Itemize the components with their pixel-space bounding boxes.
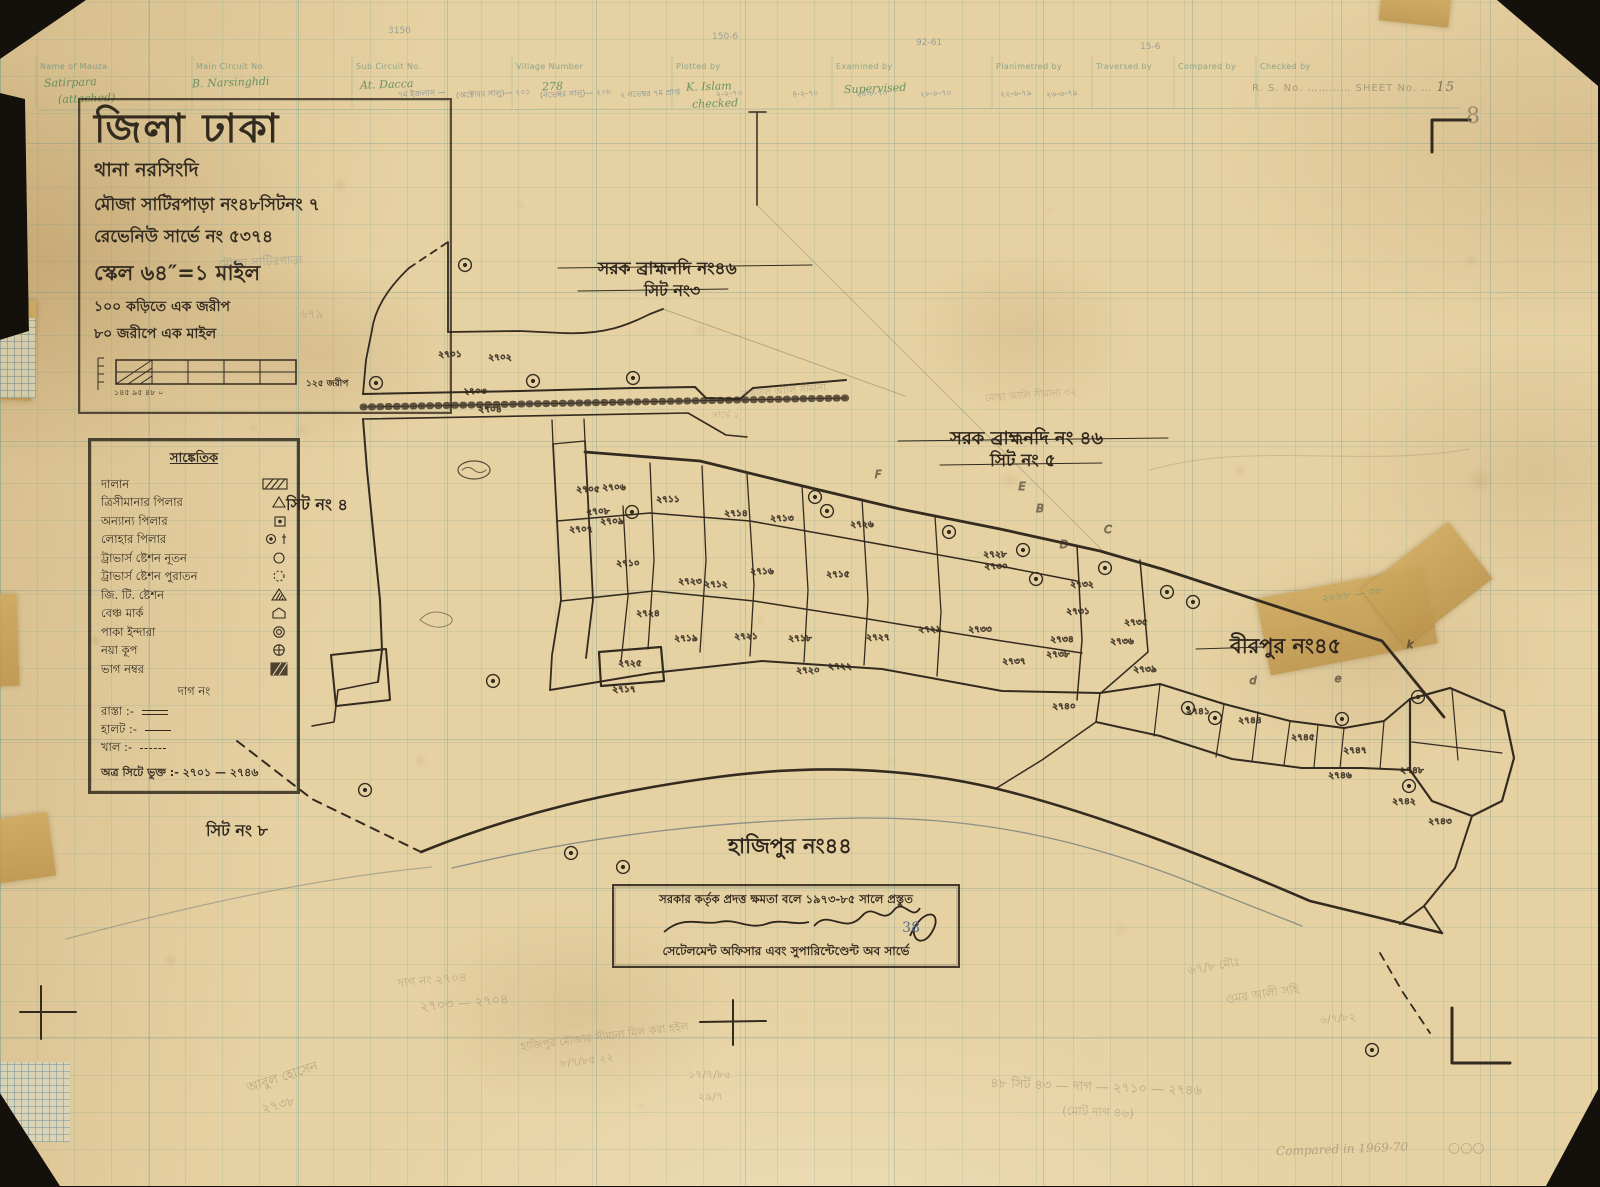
legend-item-label: ট্রাভার্স ষ্টেশন পুরাতন	[101, 568, 198, 587]
legend-item: ট্রাভার্স ষ্টেশন নূতন	[101, 550, 287, 569]
handwritten-note: দাগ নং ২৭০৪	[397, 969, 467, 995]
header-entry: Satirpara	[44, 75, 97, 90]
survey-station-dot	[1213, 716, 1216, 719]
circle-icon	[253, 550, 287, 569]
plot-line	[995, 722, 1096, 789]
survey-station-dot	[1103, 566, 1106, 569]
section-letter: D	[1060, 538, 1068, 551]
sheet-no-value: 15	[1436, 80, 1455, 95]
survey-station-dot	[531, 379, 534, 382]
plot-number: ২৭৩৯	[1133, 665, 1157, 675]
mouza-line: মৌজা সাটিরপাড়া নং৪৮সিটনং ৭	[94, 192, 438, 220]
plot-number: ২৭০৬	[602, 483, 626, 493]
scanned-map-sheet: ২৭০১২৭০২২৭০৩২৭০৪২৭০৫২৭০৬২৭০৭২৭০৮২৭০৯২৭১০…	[0, 0, 1600, 1187]
plot-line	[621, 506, 628, 662]
plot-number: ২৭৩১	[1066, 607, 1089, 617]
survey-station-icon	[1209, 712, 1222, 725]
date-stamp: ২ নভেম্বর ৭ম প্রাপ্ত	[620, 86, 681, 102]
circle-dashed-icon	[253, 568, 287, 587]
plot-number: ২৭১২	[704, 580, 728, 590]
survey-station-dot	[1370, 1048, 1373, 1051]
plot-line	[561, 591, 1082, 653]
survey-station-dot	[1191, 600, 1194, 603]
blue-graph-scrap	[0, 318, 36, 398]
sheet-no-label: SHEET No.	[1356, 83, 1417, 94]
plot-number: ২৭২৯	[918, 625, 942, 635]
survey-station-dot	[463, 263, 466, 266]
place-label: সিট নং ৫	[990, 448, 1056, 476]
handwritten-note: ৬/৭/৮২	[1319, 1008, 1357, 1030]
plot-number: ২৭৪৮	[1400, 766, 1424, 776]
plot-number: ২৭২২	[828, 662, 852, 672]
road-line	[585, 441, 593, 658]
legend-dag-no: দাগ নং	[101, 683, 287, 702]
construction-line	[757, 205, 1105, 553]
legend-item: জি. টি. ষ্টেশন	[101, 587, 287, 606]
plot-number: ২৭৪০	[1052, 702, 1075, 712]
stamp-line-3: সেটেলমেন্ট অফিসার এবং সুপারিন্টেণ্ডেন্ট …	[614, 943, 958, 963]
plot-line	[1154, 684, 1384, 769]
plot-number: ২৭২১	[734, 632, 757, 642]
place-label: সিট নং৩	[644, 278, 700, 305]
legend-items: দালানত্রিসীমানার পিলারঅন্যান্য পিলারলোহা…	[101, 476, 287, 680]
main-road	[585, 452, 1444, 717]
survey-station-dot	[1021, 548, 1024, 551]
date-stamp: ২২-৬-৭৯	[1000, 87, 1032, 102]
header-column-label: Name of Mauza	[40, 62, 108, 71]
scalebar-tick-labels: ১৪৫ ৯৫ ৪৮ ০	[114, 388, 163, 397]
road-line	[363, 413, 747, 437]
survey-station-icon	[487, 675, 500, 688]
survey-station-dot	[813, 495, 816, 498]
legend-extra-label: রাস্তা :-	[101, 703, 134, 722]
plot-number: ২৭০৯	[600, 517, 624, 527]
survey-station-dot	[631, 376, 634, 379]
plot-number: ২৭০৫	[576, 485, 599, 495]
scale-note-1: ১০০ কড়িতে এক জরীপ	[94, 295, 438, 319]
legend-item: ত্রিসীমানার পিলার	[101, 495, 287, 514]
rs-no-dots: …………	[1307, 83, 1355, 94]
survey-station-dot	[1186, 706, 1189, 709]
legend-item-label: নয়া কূপ	[101, 642, 137, 661]
section-letter: B	[1036, 502, 1044, 515]
survey-station-dot	[363, 788, 366, 791]
road-line	[550, 444, 561, 690]
corner-mark	[1432, 120, 1470, 152]
legend-extra-row: হালট :-	[101, 722, 287, 740]
hatch-block-icon	[253, 661, 287, 680]
survey-station-icon	[809, 491, 822, 504]
handwritten-note: Compared in 1969-70	[1276, 1140, 1409, 1159]
sheet-no-dots: …	[1421, 83, 1436, 94]
survey-station-icon	[1099, 562, 1112, 575]
blue-graph-scrap	[0, 1062, 70, 1142]
survey-station-icon	[1161, 586, 1174, 599]
survey-station-icon	[627, 372, 640, 385]
handwritten-note: হাজিপুর মৌজার সীমানা মিল করা হইল	[519, 1018, 689, 1057]
legend-extra-rows: রাস্তা :-হালট :-খাল :-	[101, 704, 287, 758]
road-sample	[142, 710, 168, 715]
legend-item-label: পাকা ইন্দারা	[101, 624, 155, 643]
plot-number: ২৭০৪	[478, 405, 501, 415]
header-column-label: Sub Circuit No.	[356, 62, 421, 71]
handwritten-note: (মোট দাগ ৪৬)	[1062, 1103, 1134, 1125]
plot-polygon	[599, 647, 664, 686]
registration-mark	[700, 1000, 766, 1045]
faint-number: 150-6	[712, 32, 738, 42]
legend-item: নয়া কূপ	[101, 643, 287, 662]
header-column-label: Traversed by	[1096, 62, 1152, 71]
plot-number: ২৭৩৩	[968, 625, 992, 635]
survey-station-dot	[621, 865, 624, 868]
benchmark-icon	[253, 605, 287, 624]
plot-number: ২৭২৫	[618, 659, 641, 669]
tape-patch	[0, 812, 56, 884]
survey-station-dot	[491, 679, 494, 682]
plot-number: ২৭৪২	[1392, 797, 1416, 807]
stamp-blue-number: 38	[902, 920, 920, 936]
survey-station-dot	[1407, 784, 1410, 787]
survey-station-dot	[1340, 717, 1343, 720]
legend-item: অন্যান্য পিলার	[101, 513, 287, 532]
legend-item-label: ট্রাভার্স ষ্টেশন নূতন	[101, 550, 187, 569]
survey-station-icon	[1403, 780, 1416, 793]
plot-number: ২৭৩২	[1070, 580, 1094, 590]
survey-station-icon	[1366, 1044, 1379, 1057]
plot-number: ২৭১৯	[674, 634, 698, 644]
boundary-dashed	[1380, 953, 1430, 1033]
plot-polygon	[331, 649, 390, 706]
handwritten-note: মোহা আলি সীমানা ৩২	[985, 385, 1078, 408]
handwritten-note: ২৭০৩ — ২৭০৪	[419, 990, 509, 1019]
registration-mark	[20, 986, 76, 1039]
place-label: সরক ব্রাহ্মনদি নং ৪৬	[950, 424, 1103, 455]
survey-station-icon	[1412, 691, 1425, 704]
plot-line	[1096, 693, 1100, 722]
plot-number: ২৭২৭	[866, 633, 889, 643]
legend-extra-label: হালট :-	[101, 721, 137, 740]
plot-number: ২৭২৪	[636, 609, 659, 619]
plot-number: ২৭০৩	[463, 387, 487, 397]
hatch-rect-icon	[253, 476, 287, 495]
plot-number: ২৭১৩	[770, 514, 794, 524]
scalebar-unit-label: ১২৫ জরীপ	[306, 376, 349, 389]
plot-number: ২৭১৬	[750, 567, 774, 577]
handwritten-note: সার্ভে ২	[712, 408, 740, 423]
legend-item: বেঞ্চ মার্ক	[101, 606, 287, 625]
plot-polygon	[1410, 688, 1514, 816]
survey-station-dot	[947, 530, 950, 533]
header-column-label: Main Circuit No.	[196, 62, 266, 71]
plot-line	[648, 463, 654, 649]
survey-station-icon	[626, 506, 639, 519]
circle-cross-icon	[253, 642, 287, 661]
survey-station-dot	[1034, 577, 1037, 580]
legend-item: পাকা ইন্দারা	[101, 624, 287, 643]
section-letter: F	[875, 468, 882, 481]
date-stamp: ২৪-৮-৭০	[856, 87, 888, 102]
survey-station-icon	[943, 526, 956, 539]
faint-number: 3150	[388, 26, 411, 36]
plot-number: ২৭৪৩	[1428, 817, 1452, 827]
plot-number: ২৭৪৫	[1291, 733, 1314, 743]
header-column-label: Checked by	[1260, 62, 1311, 71]
plot-number: ২৭৪৪	[1238, 716, 1261, 726]
faint-number: 15-6	[1140, 42, 1160, 52]
plot-number: ২৭২৬	[850, 520, 874, 530]
plot-number: ২৭৩৬	[1110, 637, 1134, 647]
square-dot-icon	[253, 513, 287, 532]
place-label: হাজিপুর নং৪৪	[728, 830, 852, 865]
plot-number: ২৭৩৪	[1050, 635, 1073, 645]
handwritten-note: ৪৮ সিট ৪৩ — দাগ — ২৭১০ — ২৭৪৬	[990, 1074, 1203, 1102]
plot-line	[1102, 560, 1148, 692]
khal-curve-faint	[66, 867, 432, 939]
survey-station-dot	[1416, 695, 1419, 698]
plot-line	[1077, 546, 1082, 700]
legend-item-label: ভাগ নম্বর	[101, 661, 144, 680]
plot-number: ২৭০৭	[569, 525, 592, 535]
date-stamp: ২৬-৬-৭৯	[1046, 87, 1078, 102]
legend-item-label: ত্রিসীমানার পিলার	[101, 494, 183, 513]
pencil-curve	[1150, 449, 1470, 470]
title-block: জিলা ঢাকা থানা নরসিংদি মৌজা সাটিরপাড়া ন…	[78, 98, 452, 414]
legend-item-label: লোহার পিলার	[101, 531, 166, 550]
plot-number: ২৭৩০	[984, 562, 1007, 572]
survey-station-icon	[565, 847, 578, 860]
handwritten-note: বায়তুল আলি সীমানা	[741, 380, 827, 404]
header-column-label: Village Number	[516, 62, 583, 71]
survey-station-icon	[459, 259, 472, 272]
diagonal-scale-bar: ১৪৫ ৯৫ ৪৮ ০ ১২৫ জরীপ	[94, 352, 394, 398]
plot-line	[802, 486, 808, 662]
plot-line	[862, 499, 868, 665]
legend-extra-row: খাল :-	[101, 740, 287, 758]
plot-number: ২৭১৭	[612, 685, 635, 695]
header-column-label: Compared by	[1178, 62, 1236, 71]
faint-number: 92-61	[916, 38, 942, 48]
legend-title: সাঙ্কেতিক	[101, 449, 287, 470]
survey-station-icon	[821, 505, 834, 518]
plot-line	[935, 516, 941, 676]
handwritten-note: ৮/৭/৮৫ ২২	[559, 1049, 615, 1074]
plot-line	[1100, 684, 1450, 728]
plot-number: ২৭১৫	[826, 570, 849, 580]
plot-line	[550, 661, 1100, 693]
survey-station-dot	[1165, 590, 1168, 593]
construction-line	[663, 309, 905, 396]
handwritten-note: আবুল হোসেন	[245, 1057, 322, 1100]
legend-box: সাঙ্কেতিক দালানত্রিসীমানার পিলারঅন্যান্য…	[88, 438, 300, 794]
handwritten-note: ওমর আলী সহি	[1225, 981, 1301, 1011]
handwritten-note: ৬৭/৮ মৌঃ	[1187, 954, 1242, 983]
plot-line	[747, 474, 754, 656]
legend-extra-row: রাস্তা :-	[101, 704, 287, 722]
survey-station-icon	[1336, 713, 1349, 726]
plot-number: ২৭২৩	[678, 577, 702, 587]
handwritten-note: ২৭৩৮	[260, 1092, 298, 1121]
paper-spots	[0, 0, 1, 1]
boundary	[312, 682, 378, 726]
plot-line	[1096, 722, 1410, 770]
khal-sample	[140, 748, 166, 750]
plot-number: ২৭০২	[488, 353, 512, 363]
section-letter: E	[1019, 480, 1026, 493]
district-title: জিলা ঢাকা	[94, 108, 438, 150]
plot-number: ২৭২৮	[983, 550, 1007, 560]
survey-station-icon	[1017, 544, 1030, 557]
date-stamp: (অক্টোবর সালু)— ২০১	[456, 86, 531, 103]
date-stamp: ৪-২-৭০	[792, 87, 819, 101]
place-label: সিট নং ৮	[206, 818, 268, 845]
plot-line	[557, 513, 1077, 581]
date-stamp: (নভেম্বর সালু)— ২০৮	[540, 86, 612, 103]
tape-patch	[1379, 0, 1452, 28]
legend-item: ভাগ নম্বর	[101, 661, 287, 680]
halot-sample	[145, 730, 171, 732]
legend-item: ট্রাভার্স ষ্টেশন পুরাতন	[101, 569, 287, 588]
triangle-icon	[253, 494, 287, 513]
plot-number: ২৭৪৭	[1343, 746, 1366, 756]
section-letter: d	[1250, 674, 1258, 687]
scale-line: স্কেল ৬৪″=১ মাইল	[94, 257, 438, 292]
plot-number: ২৭৩৮	[1046, 650, 1070, 660]
legend-included-plots: অত্র সিটে ভুক্ত :- ২৭০১ — ২৭৪৬	[101, 764, 287, 783]
plot-number: ২৭১৪	[724, 509, 747, 519]
certification-stamp: সরকার কর্তৃক প্রদত্ত ক্ষমতা বলে ১৯৭৩-৮৫ …	[612, 884, 960, 968]
legend-extra-label: খাল :-	[101, 739, 132, 758]
plot-number: ২৭৪১	[1186, 707, 1209, 717]
plot-number: ২৭৩৫	[1124, 618, 1147, 628]
thana-line: থানা নরসিংদি	[94, 156, 438, 188]
plot-number: ২৭১০	[616, 559, 639, 569]
plot-line	[700, 466, 706, 652]
date-stamp: ২-২-৭০	[716, 87, 743, 101]
double-circle-icon	[253, 624, 287, 643]
legend-item-label: বেঞ্চ মার্ক	[101, 605, 144, 624]
survey-station-icon	[1182, 702, 1195, 715]
header-column-label: Plotted by	[676, 62, 721, 71]
section-letter: e	[1335, 672, 1342, 685]
handwritten-note: ○○○	[1448, 1140, 1485, 1156]
plot-line	[1412, 690, 1502, 760]
survey-station-dot	[825, 509, 828, 512]
place-label: সরক ব্রাহ্মনদি নং৪৬	[598, 256, 737, 284]
legend-item-label: অন্যান্য পিলার	[101, 513, 168, 532]
circle-dot-dagger-icon	[253, 531, 287, 550]
legend-item-label: জি. টি. ষ্টেশন	[101, 587, 164, 606]
sheet-number-row: R. S. No. ………… SHEET No. … 15	[1252, 80, 1455, 95]
road-line	[552, 419, 585, 444]
header-column-label: Examined by	[836, 62, 893, 71]
survey-station-icon	[359, 784, 372, 797]
plot-number: ২৭০৮	[586, 507, 610, 517]
plot-number: ২৭১৮	[788, 634, 812, 644]
survey-station-icon	[527, 375, 540, 388]
boundary	[448, 309, 663, 333]
header-column-label: Planimetred by	[996, 62, 1062, 71]
legend-item: দালান	[101, 476, 287, 495]
scale-note-2: ৮০ জরীপে এক মাইল	[94, 322, 438, 346]
handwritten-note: ২৯/৭	[698, 1088, 723, 1107]
handwritten-note: ১৭/৭/৮৫	[688, 1066, 731, 1085]
header-entry: B. Narsinghdi	[192, 75, 270, 91]
survey-station-icon	[617, 861, 630, 874]
triangle-hatched-icon	[253, 587, 287, 606]
legend-item: লোহার পিলার	[101, 532, 287, 551]
label-rule	[558, 265, 1262, 649]
pencil-scribble	[420, 612, 452, 627]
pond-hatch	[462, 468, 486, 473]
plot-number: ২৭২০	[796, 666, 819, 676]
plot-number: ২৭১১	[656, 495, 679, 505]
survey-station-dot	[569, 851, 572, 854]
paper: ২৭০১২৭০২২৭০৩২৭০৪২৭০৫২৭০৬২৭০৭২৭০৮২৭০৯২৭১০…	[0, 0, 1600, 1187]
registration-mark	[749, 112, 766, 205]
survey-station-icon	[1187, 596, 1200, 609]
date-stamp: ২৮-৮-৭০	[920, 87, 952, 102]
plot-line	[1400, 816, 1472, 933]
pond	[458, 461, 490, 479]
legend-item-label: দালান	[101, 476, 129, 495]
tape-patch	[0, 594, 20, 687]
corner-mark	[1452, 1008, 1510, 1063]
boundary	[363, 419, 382, 682]
pencil-note-8: 8	[1466, 104, 1480, 129]
rs-no-label: R. S. No.	[1252, 83, 1303, 94]
survey-station-icon	[1030, 573, 1043, 586]
survey-station-dot	[630, 510, 633, 513]
plot-number: ২৭৩৭	[1002, 657, 1025, 667]
section-letter: C	[1104, 523, 1112, 536]
revenue-survey-line: রেভেনিউ সার্ভে নং ৫৩৭৪	[94, 224, 438, 252]
plot-number: ২৭৪৬	[1328, 771, 1352, 781]
